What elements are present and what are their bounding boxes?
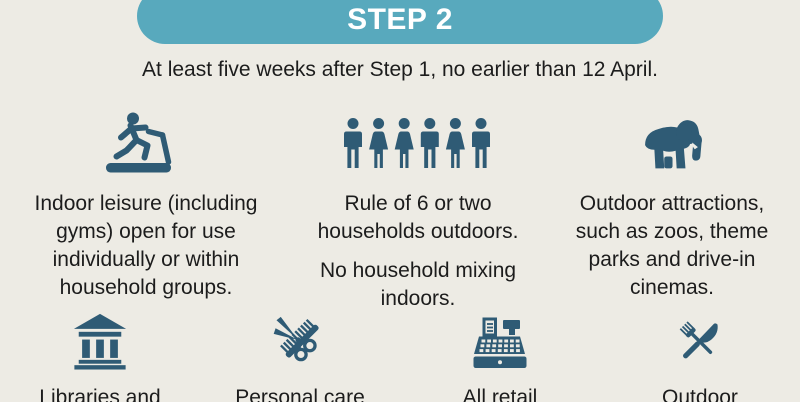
row-2: Libraries and xyxy=(0,308,800,402)
subtitle: At least five weeks after Step 1, no ear… xyxy=(0,58,800,82)
treadmill-icon-wrap xyxy=(0,104,292,176)
people-group-icon xyxy=(343,118,493,170)
outdoor-attractions-caption: Outdoor attractions, such as zoos, theme… xyxy=(544,190,800,302)
column-rule-of-6: Rule of 6 or two households outdoors. No… xyxy=(292,104,544,313)
scissors-comb-icon-wrap xyxy=(200,308,400,370)
all-retail-caption: All retail xyxy=(400,384,600,402)
caption-line: Outdoor xyxy=(600,384,800,402)
library-icon xyxy=(71,312,129,370)
fork-knife-icon-wrap xyxy=(600,308,800,370)
caption-line: parks and drive-in xyxy=(544,246,800,274)
indoor-leisure-caption: Indoor leisure (including gyms) open for… xyxy=(0,190,292,302)
caption-line: No household mixing xyxy=(292,257,544,285)
column-outdoor-attractions: Outdoor attractions, such as zoos, theme… xyxy=(544,104,800,313)
cash-register-icon xyxy=(471,315,529,370)
caption-line: All retail xyxy=(400,384,600,402)
scissors-comb-icon xyxy=(269,308,331,370)
libraries-caption: Libraries and xyxy=(0,384,200,402)
caption-line: households outdoors. xyxy=(292,218,544,246)
caption-line: such as zoos, theme xyxy=(544,218,800,246)
cash-register-icon-wrap xyxy=(400,308,600,370)
caption-line: individually or within xyxy=(0,246,292,274)
caption-line: cinemas. xyxy=(544,274,800,302)
people-icon-wrap xyxy=(292,104,544,176)
fork-knife-icon xyxy=(672,314,728,370)
treadmill-icon xyxy=(100,110,192,176)
caption-line: household groups. xyxy=(0,274,292,302)
row-1: Indoor leisure (including gyms) open for… xyxy=(0,104,800,313)
caption-line: Outdoor attractions, xyxy=(544,190,800,218)
caption-line: Rule of 6 or two xyxy=(292,190,544,218)
caption-line: Indoor leisure (including xyxy=(0,190,292,218)
caption-line: gyms) open for use xyxy=(0,218,292,246)
rule-of-6-caption: Rule of 6 or two households outdoors. xyxy=(292,190,544,246)
library-icon-wrap xyxy=(0,308,200,370)
step-header-pill: STEP 2 xyxy=(137,0,663,44)
elephant-icon-wrap xyxy=(544,104,800,176)
step2-infographic: STEP 2 At least five weeks after Step 1,… xyxy=(0,0,800,402)
caption-line: Personal care xyxy=(200,384,400,402)
column-indoor-leisure: Indoor leisure (including gyms) open for… xyxy=(0,104,292,313)
column-libraries: Libraries and xyxy=(0,308,200,402)
elephant-icon xyxy=(634,114,710,172)
caption-line: Libraries and xyxy=(0,384,200,402)
outdoor-hospitality-caption: Outdoor xyxy=(600,384,800,402)
step-header-label: STEP 2 xyxy=(347,0,453,37)
column-personal-care: Personal care xyxy=(200,308,400,402)
personal-care-caption: Personal care xyxy=(200,384,400,402)
no-mixing-caption: No household mixing indoors. xyxy=(292,257,544,313)
column-outdoor-hospitality: Outdoor xyxy=(600,308,800,402)
column-all-retail: All retail xyxy=(400,308,600,402)
